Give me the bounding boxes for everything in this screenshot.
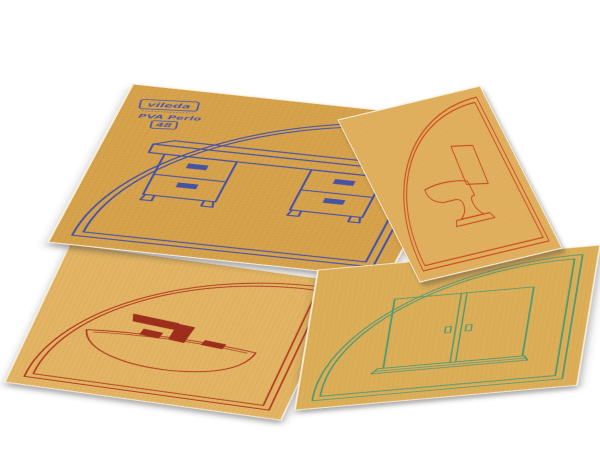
cloth-bottom-left	[5, 244, 346, 420]
stamp-number-text: 48	[154, 122, 173, 129]
photo-background: vileda PVA Perlo 48	[0, 0, 600, 450]
cloth-photo: vileda PVA Perlo 48	[0, 0, 600, 450]
